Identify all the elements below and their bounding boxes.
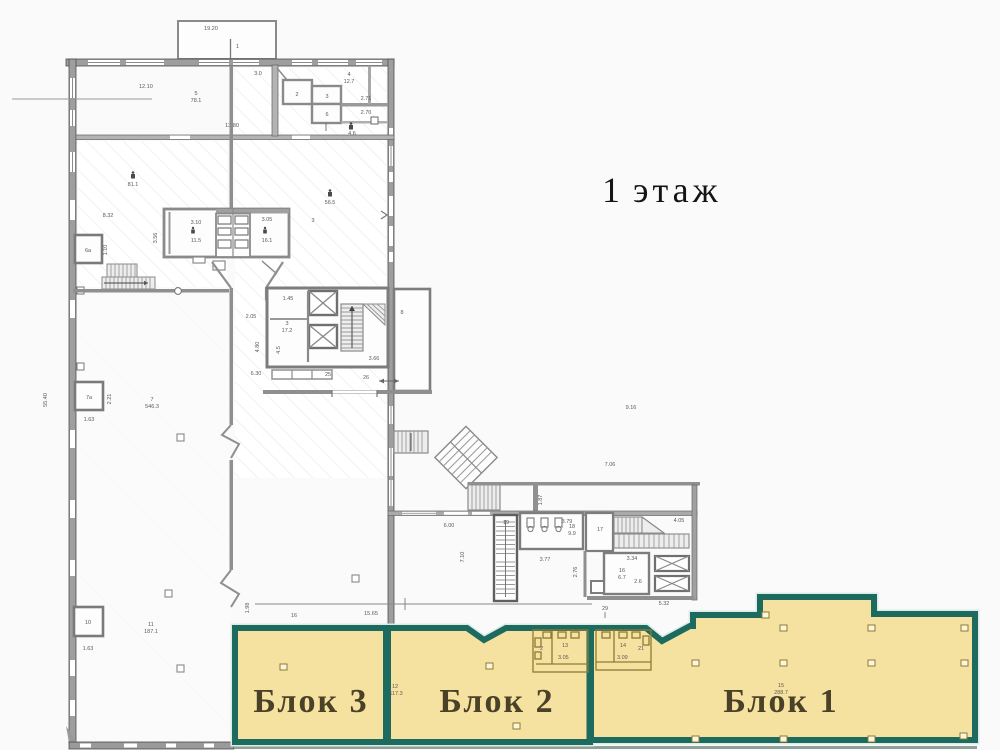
- svg-text:3.05: 3.05: [262, 217, 273, 223]
- svg-text:19: 19: [503, 520, 509, 526]
- svg-text:117.3: 117.3: [389, 691, 402, 697]
- svg-text:12.10: 12.10: [139, 84, 153, 90]
- svg-text:8: 8: [400, 310, 403, 316]
- svg-text:17.2: 17.2: [282, 328, 293, 334]
- svg-text:3.56: 3.56: [153, 233, 159, 244]
- svg-text:Блок 1: Блок 1: [723, 683, 838, 720]
- svg-text:3.0: 3.0: [254, 71, 262, 77]
- svg-text:3.77: 3.77: [540, 557, 551, 563]
- svg-text:6a: 6a: [85, 248, 92, 254]
- svg-text:2.71: 2.71: [361, 96, 372, 102]
- svg-text:9.9: 9.9: [568, 531, 576, 537]
- svg-text:17: 17: [597, 527, 603, 533]
- svg-text:81.1: 81.1: [128, 182, 139, 188]
- svg-text:6.00: 6.00: [444, 523, 455, 529]
- svg-text:7.10: 7.10: [460, 552, 466, 563]
- svg-text:7.06: 7.06: [605, 462, 616, 468]
- svg-text:14: 14: [620, 643, 626, 649]
- svg-text:5.32: 5.32: [659, 601, 670, 607]
- svg-text:3: 3: [311, 218, 314, 224]
- svg-text:2: 2: [295, 92, 298, 98]
- svg-text:10: 10: [85, 620, 91, 626]
- svg-text:2.76: 2.76: [573, 567, 579, 578]
- svg-text:19.20: 19.20: [204, 26, 218, 32]
- svg-text:21: 21: [638, 646, 644, 652]
- svg-text:4.6: 4.6: [348, 131, 356, 137]
- svg-text:3.79: 3.79: [562, 519, 573, 525]
- svg-text:2.70: 2.70: [361, 110, 372, 116]
- svg-text:1: 1: [602, 170, 620, 210]
- svg-text:3: 3: [325, 94, 328, 100]
- svg-text:1.63: 1.63: [83, 646, 94, 652]
- svg-text:25: 25: [325, 372, 331, 378]
- svg-text:4.05: 4.05: [674, 518, 685, 524]
- svg-text:3.10: 3.10: [191, 220, 202, 226]
- svg-text:3.09: 3.09: [617, 655, 628, 661]
- svg-text:6.7: 6.7: [618, 575, 626, 581]
- svg-text:78.1: 78.1: [191, 98, 202, 104]
- svg-text:11: 11: [148, 622, 154, 628]
- svg-text:3: 3: [285, 321, 288, 327]
- svg-text:15.65: 15.65: [364, 611, 378, 617]
- svg-text:1.45: 1.45: [283, 296, 294, 302]
- svg-text:5: 5: [194, 91, 197, 97]
- svg-text:4.80: 4.80: [255, 342, 261, 353]
- svg-text:1.87: 1.87: [538, 495, 544, 506]
- svg-text:3.66: 3.66: [369, 356, 380, 362]
- svg-text:6.30: 6.30: [251, 371, 262, 377]
- svg-text:29: 29: [602, 606, 608, 612]
- svg-text:2.21: 2.21: [107, 394, 113, 405]
- svg-text:Блок 3: Блок 3: [253, 683, 368, 720]
- svg-text:Блок 2: Блок 2: [439, 683, 554, 720]
- svg-text:55.40: 55.40: [43, 393, 49, 407]
- svg-text:8.32: 8.32: [103, 213, 114, 219]
- svg-text:2.6: 2.6: [634, 579, 642, 585]
- svg-text:4: 4: [347, 72, 350, 78]
- svg-text:12: 12: [392, 684, 398, 690]
- svg-text:3.05: 3.05: [558, 655, 569, 661]
- svg-text:16: 16: [619, 568, 625, 574]
- svg-text:26: 26: [363, 375, 369, 381]
- svg-text:1.98: 1.98: [245, 603, 251, 614]
- svg-text:187.1: 187.1: [144, 629, 158, 635]
- svg-text:1.10: 1.10: [103, 245, 109, 256]
- svg-text:56.5: 56.5: [325, 200, 336, 206]
- svg-text:2.05: 2.05: [246, 314, 257, 320]
- svg-text:этаж: этаж: [633, 170, 721, 210]
- svg-text:1.63: 1.63: [84, 417, 95, 423]
- svg-text:3.34: 3.34: [627, 556, 638, 562]
- svg-text:2: 2: [540, 646, 543, 652]
- svg-text:16.1: 16.1: [262, 238, 273, 244]
- svg-text:1: 1: [236, 44, 239, 50]
- svg-text:6: 6: [325, 112, 328, 118]
- svg-text:12.7: 12.7: [344, 79, 355, 85]
- svg-text:7: 7: [150, 397, 153, 403]
- svg-text:9.16: 9.16: [626, 405, 637, 411]
- svg-text:11.5: 11.5: [191, 238, 201, 244]
- svg-text:546.3: 546.3: [145, 404, 159, 410]
- svg-text:16: 16: [291, 613, 297, 619]
- svg-text:4.5: 4.5: [276, 346, 282, 354]
- svg-text:7a: 7a: [86, 395, 93, 401]
- svg-text:13: 13: [562, 643, 568, 649]
